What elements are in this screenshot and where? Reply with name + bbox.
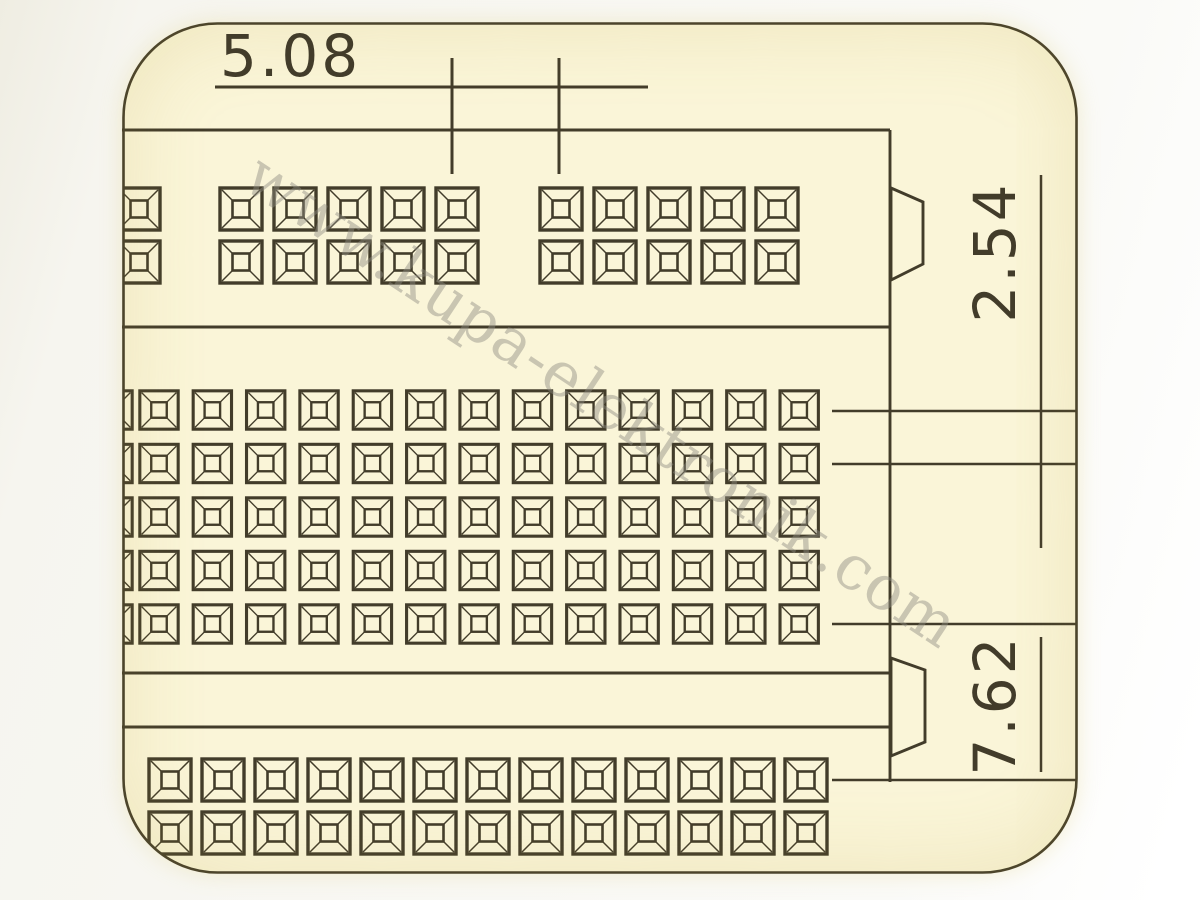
- dimension-label-right-section-gap: 7.62: [966, 634, 1024, 775]
- dimension-label-right-pitch: 2.54: [966, 181, 1024, 322]
- technical-drawing-photo: 5.08 2.54 7.62 www.kupa-elektronik.com: [0, 0, 1200, 900]
- paper-label: [124, 24, 1077, 873]
- dimension-label-top-pitch: 5.08: [220, 27, 361, 85]
